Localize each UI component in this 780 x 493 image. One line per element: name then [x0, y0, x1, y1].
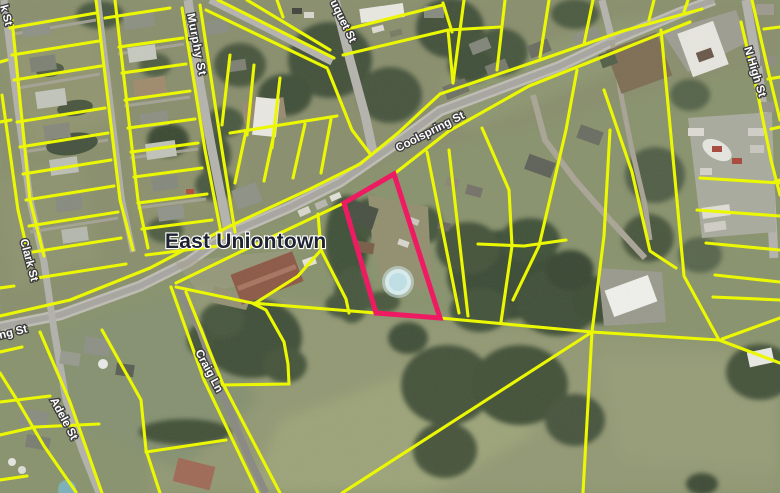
- svg-text:East Uniontown: East Uniontown: [165, 230, 326, 253]
